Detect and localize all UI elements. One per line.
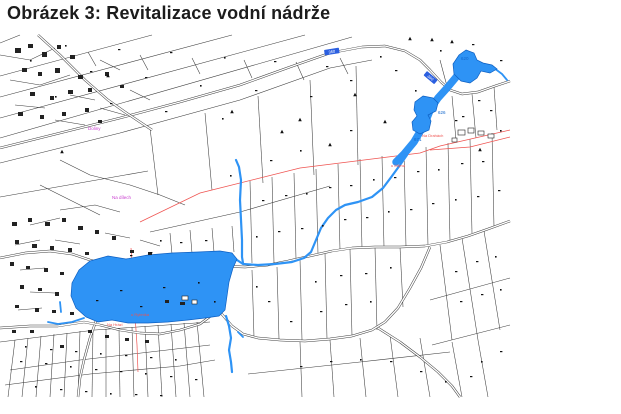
parcel-line bbox=[64, 333, 67, 397]
building bbox=[22, 68, 27, 72]
land-use-symbol bbox=[477, 196, 479, 197]
land-use-symbol bbox=[365, 273, 367, 274]
land-use-symbol bbox=[455, 120, 457, 121]
land-use-symbol bbox=[160, 240, 162, 242]
land-use-symbol bbox=[96, 300, 98, 301]
building bbox=[12, 330, 16, 333]
land-use-symbol bbox=[481, 361, 483, 363]
parcel-line bbox=[150, 128, 158, 195]
parcel-line bbox=[20, 268, 45, 270]
land-use-symbol bbox=[498, 190, 500, 191]
land-use-symbol bbox=[195, 379, 197, 380]
parcel-line bbox=[484, 231, 500, 330]
land-use-symbol bbox=[175, 359, 177, 361]
land-use-symbol bbox=[65, 45, 67, 47]
red-lines bbox=[131, 130, 510, 372]
building bbox=[85, 108, 89, 112]
land-use-symbol bbox=[326, 66, 328, 67]
land-use-symbol bbox=[472, 44, 474, 45]
land-use-symbol bbox=[230, 175, 232, 177]
building bbox=[50, 246, 54, 250]
parcel-line bbox=[478, 340, 488, 397]
building bbox=[68, 248, 72, 252]
building-outline bbox=[452, 138, 457, 142]
land-use-symbol bbox=[160, 395, 162, 396]
parcel-line bbox=[15, 105, 45, 108]
land-use-symbol bbox=[350, 185, 352, 186]
parcel-line bbox=[55, 120, 85, 125]
building bbox=[88, 330, 92, 333]
land-use-symbol bbox=[85, 391, 87, 392]
parcel-line bbox=[0, 35, 305, 118]
building bbox=[38, 288, 42, 291]
land-use-symbol bbox=[130, 255, 132, 256]
land-use-symbol bbox=[470, 376, 472, 377]
building bbox=[26, 266, 30, 269]
land-use-symbol bbox=[150, 357, 152, 358]
figure-title: Obrázek 3: Revitalizace vodní nádrže bbox=[7, 3, 330, 24]
parcel-line bbox=[375, 247, 377, 330]
land-use-symbol bbox=[500, 130, 502, 132]
tree-symbol bbox=[280, 130, 284, 133]
cadastral-map: DolinyNa dílechu MlýnaNa Draháchu Rybník… bbox=[0, 30, 621, 414]
building-outline bbox=[192, 300, 197, 304]
stream-line bbox=[234, 155, 407, 265]
building bbox=[15, 48, 21, 53]
building bbox=[105, 335, 109, 338]
parcel-line bbox=[145, 326, 148, 397]
land-use-symbol bbox=[55, 96, 57, 98]
parcel-line bbox=[330, 340, 334, 397]
land-use-symbol bbox=[417, 171, 419, 172]
land-use-symbol bbox=[256, 286, 258, 288]
building bbox=[30, 330, 34, 333]
building-outline bbox=[488, 134, 494, 138]
building bbox=[10, 262, 14, 266]
parcel-line bbox=[105, 233, 130, 238]
land-use-symbol bbox=[20, 361, 22, 362]
land-use-symbol bbox=[432, 203, 434, 204]
land-use-symbol bbox=[255, 90, 257, 91]
land-use-symbol bbox=[90, 71, 92, 72]
building bbox=[15, 240, 19, 244]
building bbox=[50, 96, 54, 100]
land-use-symbol bbox=[500, 60, 502, 61]
land-use-symbol bbox=[395, 70, 397, 71]
parcel-line bbox=[356, 66, 358, 165]
land-use-symbol bbox=[340, 275, 342, 276]
parcel-line bbox=[250, 181, 252, 263]
parcel-line bbox=[5, 360, 215, 385]
land-use-symbol bbox=[500, 289, 502, 291]
land-use-symbol bbox=[390, 361, 392, 362]
land-use-symbol bbox=[270, 160, 272, 161]
building bbox=[38, 72, 42, 76]
land-use-symbol bbox=[462, 116, 464, 117]
parcel-line bbox=[170, 233, 172, 254]
building bbox=[62, 112, 66, 116]
land-use-symbol bbox=[100, 353, 102, 355]
land-use-symbol bbox=[170, 376, 172, 377]
land-use-symbol bbox=[460, 301, 462, 302]
land-use-symbol bbox=[268, 301, 270, 302]
red-boundary-line bbox=[140, 130, 510, 222]
land-use-symbol bbox=[420, 371, 422, 372]
land-use-symbol bbox=[145, 77, 147, 78]
parcel-line bbox=[92, 330, 93, 397]
land-use-symbol bbox=[256, 236, 258, 238]
building bbox=[68, 90, 73, 94]
land-use-symbol bbox=[301, 228, 303, 229]
land-use-symbols bbox=[20, 37, 502, 396]
building-outline bbox=[468, 128, 474, 133]
building bbox=[130, 250, 134, 253]
building bbox=[78, 226, 83, 230]
parcel-line bbox=[232, 226, 234, 252]
land-use-symbol bbox=[481, 294, 483, 295]
land-use-symbol bbox=[495, 256, 497, 258]
building bbox=[40, 115, 44, 119]
building bbox=[180, 302, 185, 305]
land-use-symbol bbox=[380, 56, 382, 58]
building-outline bbox=[478, 131, 484, 135]
main-pond bbox=[71, 251, 237, 323]
land-use-symbol bbox=[60, 389, 62, 390]
land-use-symbol bbox=[180, 242, 182, 243]
building bbox=[20, 285, 24, 289]
land-use-symbol bbox=[145, 373, 147, 375]
building bbox=[57, 45, 61, 49]
building bbox=[85, 252, 89, 255]
building bbox=[145, 340, 149, 343]
building bbox=[35, 308, 39, 312]
parcel-line bbox=[277, 267, 279, 339]
building bbox=[15, 305, 19, 308]
parcel-line bbox=[294, 173, 296, 259]
parcel-line bbox=[244, 60, 252, 78]
parcel-line bbox=[88, 52, 96, 66]
parcel-line bbox=[40, 185, 100, 215]
building bbox=[55, 292, 59, 296]
land-use-symbol bbox=[150, 252, 152, 253]
land-use-symbol bbox=[445, 381, 447, 383]
parcel-line bbox=[60, 205, 120, 212]
parcel-line bbox=[158, 325, 162, 397]
building bbox=[30, 92, 35, 96]
map-label: Doliny bbox=[88, 126, 101, 131]
land-use-symbol bbox=[224, 57, 226, 59]
land-use-symbol bbox=[165, 111, 167, 112]
land-use-symbol bbox=[45, 363, 47, 364]
land-use-symbol bbox=[118, 49, 120, 50]
land-use-symbol bbox=[344, 219, 346, 220]
parcel-line bbox=[390, 335, 398, 397]
land-use-symbol bbox=[350, 130, 352, 131]
land-use-symbol bbox=[388, 211, 390, 213]
map-canvas: DolinyNa dílechu MlýnaNa Draháchu Rybník… bbox=[0, 30, 621, 414]
map-label: 620 bbox=[461, 56, 469, 61]
building bbox=[70, 312, 74, 315]
land-use-symbol bbox=[345, 304, 347, 305]
building bbox=[78, 75, 83, 79]
building bbox=[70, 55, 75, 59]
tree-symbol bbox=[298, 118, 302, 121]
tree-symbol bbox=[430, 38, 434, 41]
land-use-symbol bbox=[274, 61, 276, 62]
land-use-symbol bbox=[366, 217, 368, 218]
land-use-symbol bbox=[170, 52, 172, 53]
parcel-line bbox=[252, 270, 254, 337]
land-use-symbol bbox=[300, 366, 302, 367]
parcel-line bbox=[140, 240, 160, 246]
tree-symbol bbox=[328, 143, 332, 146]
parcel-line bbox=[258, 96, 263, 183]
parcel-line bbox=[205, 113, 212, 190]
parcel-line bbox=[310, 80, 314, 175]
land-use-symbol bbox=[500, 351, 502, 352]
tree-symbol bbox=[60, 150, 64, 153]
land-use-symbol bbox=[205, 240, 207, 241]
parcel-line bbox=[382, 156, 384, 247]
parcel-line bbox=[400, 247, 403, 307]
parcel-line bbox=[10, 75, 70, 85]
parcel-line bbox=[140, 55, 148, 70]
parcel-line bbox=[119, 328, 120, 397]
land-use-symbol bbox=[360, 359, 362, 361]
stream-line bbox=[60, 302, 61, 312]
parcel-line bbox=[197, 322, 204, 397]
mid-pond bbox=[412, 96, 438, 134]
map-label: 671 bbox=[414, 137, 422, 142]
land-use-symbol bbox=[438, 169, 440, 171]
parcel-line bbox=[130, 90, 150, 100]
map-label: u Mlýna bbox=[391, 163, 406, 168]
building bbox=[120, 85, 124, 88]
parcel-lines bbox=[0, 35, 510, 397]
parcel-line bbox=[432, 325, 510, 345]
land-use-symbol bbox=[476, 261, 478, 262]
parcel-line bbox=[0, 60, 372, 163]
land-use-symbol bbox=[440, 50, 442, 52]
parcel-line bbox=[350, 249, 352, 336]
roads bbox=[0, 35, 510, 397]
land-use-symbol bbox=[478, 100, 480, 101]
land-use-symbol bbox=[285, 195, 287, 196]
land-use-symbol bbox=[370, 301, 372, 303]
building-outline bbox=[182, 296, 188, 300]
parcel-line bbox=[0, 35, 232, 97]
land-use-symbol bbox=[120, 371, 122, 372]
land-use-symbol bbox=[410, 209, 412, 210]
parcel-line bbox=[440, 245, 452, 340]
land-use-symbol bbox=[278, 231, 280, 232]
figure: Obrázek 3: Revitalizace vodní nádrže Dol… bbox=[0, 0, 621, 414]
road-plate: 360 bbox=[324, 48, 340, 56]
building bbox=[60, 345, 64, 348]
parcel-line bbox=[494, 87, 497, 130]
land-use-symbol bbox=[390, 267, 392, 269]
land-use-symbol bbox=[482, 161, 484, 162]
parcel-line bbox=[300, 342, 302, 397]
building bbox=[62, 218, 66, 222]
building bbox=[52, 310, 56, 313]
top-pond bbox=[453, 50, 497, 83]
land-use-symbol bbox=[455, 271, 457, 272]
map-label: Na Hrázi bbox=[107, 322, 123, 327]
land-use-symbol bbox=[262, 200, 264, 201]
tree-symbol bbox=[353, 93, 357, 96]
tree-symbol bbox=[230, 110, 234, 113]
building bbox=[12, 222, 17, 226]
land-use-symbol bbox=[490, 110, 492, 111]
tree-symbol bbox=[383, 120, 387, 123]
land-use-symbol bbox=[322, 225, 324, 227]
building bbox=[28, 44, 33, 48]
parcel-line bbox=[470, 139, 472, 233]
parcel-line bbox=[325, 253, 327, 339]
parcel-line bbox=[30, 292, 55, 293]
land-use-symbol bbox=[30, 60, 32, 62]
map-label: Na Drahách bbox=[422, 133, 443, 138]
land-use-symbol bbox=[300, 150, 302, 152]
parcel-line bbox=[420, 338, 430, 397]
land-use-symbol bbox=[315, 281, 317, 283]
map-label: u Rybníka bbox=[131, 312, 150, 317]
tree-symbol bbox=[450, 40, 454, 43]
tree-symbol bbox=[408, 37, 412, 40]
land-use-symbol bbox=[95, 369, 97, 370]
land-use-symbol bbox=[329, 187, 331, 188]
parcel-line bbox=[360, 159, 362, 248]
land-use-symbol bbox=[110, 393, 112, 395]
land-use-symbol bbox=[461, 163, 463, 164]
parcel-line bbox=[100, 60, 120, 70]
parcel-line bbox=[212, 228, 214, 252]
land-use-symbol bbox=[135, 394, 137, 395]
parcel-line bbox=[55, 240, 80, 244]
building bbox=[95, 230, 99, 234]
land-use-symbol bbox=[222, 118, 224, 120]
building bbox=[44, 268, 48, 272]
land-use-symbol bbox=[125, 355, 127, 356]
building bbox=[88, 88, 92, 92]
building bbox=[165, 300, 169, 303]
building bbox=[55, 68, 60, 73]
parcel-line bbox=[0, 35, 20, 43]
parcel-line bbox=[448, 143, 450, 241]
map-label: 626 bbox=[438, 110, 446, 115]
land-use-symbol bbox=[320, 311, 322, 312]
land-use-symbol bbox=[310, 96, 312, 97]
land-use-symbol bbox=[110, 103, 112, 104]
building bbox=[125, 338, 129, 341]
land-use-symbol bbox=[198, 282, 200, 284]
parcel-line bbox=[192, 58, 200, 74]
land-use-symbol bbox=[415, 90, 417, 92]
land-use-symbol bbox=[394, 177, 396, 178]
parcel-line bbox=[360, 338, 366, 397]
parcel-line bbox=[132, 327, 134, 397]
land-use-symbol bbox=[50, 349, 52, 350]
land-use-symbol bbox=[35, 386, 37, 388]
land-use-symbol bbox=[373, 179, 375, 181]
land-use-symbol bbox=[455, 199, 457, 201]
parcel-line bbox=[184, 323, 190, 397]
parcel-line bbox=[272, 177, 274, 263]
parcel-line bbox=[36, 336, 41, 397]
parcel-line bbox=[8, 340, 15, 397]
land-use-symbol bbox=[75, 351, 77, 352]
land-use-symbol bbox=[290, 321, 292, 322]
building bbox=[32, 244, 37, 248]
land-use-symbol bbox=[306, 193, 308, 195]
parcel-line bbox=[0, 37, 352, 138]
land-use-symbol bbox=[70, 366, 72, 368]
parcel-line bbox=[426, 147, 428, 246]
building bbox=[45, 222, 50, 226]
land-use-symbol bbox=[163, 287, 165, 288]
land-use-symbol bbox=[200, 85, 202, 87]
tree-symbol bbox=[478, 148, 482, 151]
building bbox=[60, 272, 64, 275]
map-label: Na dílech bbox=[112, 195, 132, 200]
building bbox=[28, 218, 32, 222]
building-outline bbox=[458, 130, 465, 135]
building bbox=[18, 112, 23, 116]
building bbox=[42, 52, 47, 57]
parcel-line bbox=[430, 278, 510, 300]
parcel-line bbox=[492, 133, 494, 227]
land-use-symbol bbox=[140, 306, 142, 307]
land-use-symbol bbox=[214, 301, 216, 303]
building bbox=[112, 236, 116, 240]
land-use-symbol bbox=[120, 290, 122, 291]
building bbox=[98, 120, 102, 123]
land-use-symbol bbox=[330, 361, 332, 362]
parcel-line bbox=[300, 259, 302, 340]
parcel-line bbox=[452, 96, 456, 140]
land-use-symbol bbox=[350, 80, 352, 81]
parcel-line bbox=[190, 230, 192, 253]
land-use-symbol bbox=[25, 346, 27, 348]
parcel-line bbox=[50, 334, 54, 397]
